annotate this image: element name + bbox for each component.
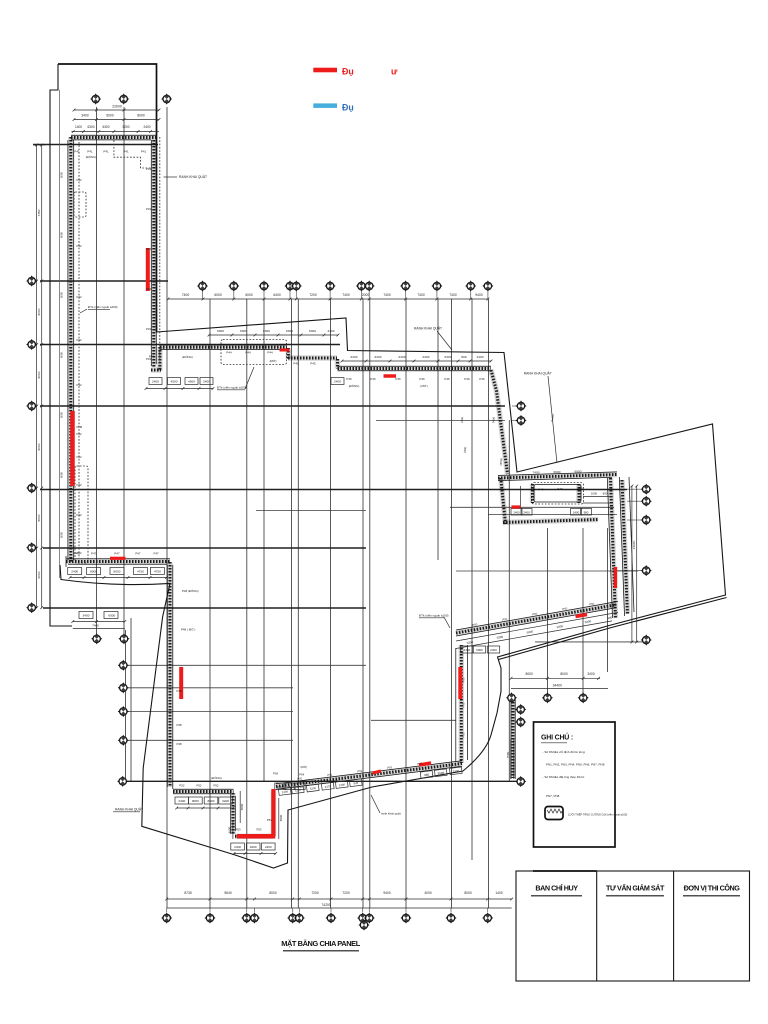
svg-text:P41: P41 [103,150,109,154]
svg-text:6000: 6000 [60,471,64,478]
svg-text:P42: P42 [77,483,83,487]
svg-text:7200: 7200 [309,293,317,297]
svg-text:6000: 6000 [60,171,64,178]
svg-text:6300: 6300 [445,355,452,359]
svg-text:P43: P43 [146,207,152,211]
svg-text:6000: 6000 [575,469,582,473]
svg-text:6000: 6000 [60,231,64,238]
svg-text:8000: 8000 [240,803,244,810]
svg-text:8000: 8000 [37,514,41,521]
svg-text:8000: 8000 [560,672,568,676]
svg-text:3400: 3400 [452,769,459,774]
svg-text:P48: P48 [177,742,183,746]
svg-text:PN1, PN2, PN3, PN4, PN5, PN6,: PN1, PN2, PN3, PN4, PN5, PN6, PN7, PN8 [546,763,605,767]
svg-text:RANH KHAI QUẬT: RANH KHAI QUẬT [414,327,442,331]
svg-text:2400: 2400 [573,511,580,515]
svg-text:ư: ư [391,67,398,77]
svg-text:6300: 6300 [102,125,109,129]
svg-text:9400: 9400 [383,891,391,895]
svg-text:8000: 8000 [114,570,121,574]
svg-text:6300: 6300 [309,329,316,333]
svg-text:8000: 8000 [269,891,277,895]
svg-text:4000: 4000 [424,891,432,895]
svg-text:2400: 2400 [513,511,520,515]
svg-text:8000: 8000 [526,672,534,676]
svg-text:P45: P45 [293,362,299,366]
svg-text:P53: P53 [236,828,241,832]
svg-text:P49: P49 [538,488,544,492]
svg-text:P43: P43 [146,167,152,171]
svg-text:PN8: PN8 [77,425,83,429]
svg-text:6000: 6000 [60,531,64,538]
svg-text:GHI CHÚ :: GHI CHÚ : [541,733,573,742]
svg-text:7400: 7400 [182,293,190,297]
svg-text:6300: 6300 [399,355,406,359]
svg-text:P51: P51 [417,761,423,766]
svg-text:P41: P41 [87,150,93,154]
svg-text:P54: P54 [299,772,304,776]
svg-text:(MỞ): (MỞ) [301,764,308,769]
svg-text:P55: P55 [462,677,466,682]
svg-text:7200: 7200 [311,891,319,895]
svg-text:6300: 6300 [375,355,382,359]
svg-text:P54: P54 [273,771,278,775]
svg-text:P45: P45 [310,362,316,366]
svg-text:2400: 2400 [463,648,470,652]
svg-text:1000: 1000 [591,492,598,496]
svg-text:2400: 2400 [460,416,465,423]
svg-text:P51: P51 [327,772,333,777]
svg-text:6300: 6300 [423,355,430,359]
svg-text:2400: 2400 [234,845,241,849]
svg-text:P48 (ĐÓNG): P48 (ĐÓNG) [182,588,199,593]
svg-text:22600: 22600 [112,105,122,109]
svg-text:P47: P47 [154,552,160,556]
svg-text:P49: P49 [577,487,583,491]
svg-text:BAN CHỈ HUY: BAN CHỈ HUY [535,884,578,893]
svg-text:6300: 6300 [351,355,358,359]
svg-text:PN7, PN8: PN7, PN8 [546,794,560,798]
svg-text:(ĐÓNG): (ĐÓNG) [211,775,222,780]
svg-text:6000: 6000 [37,571,41,578]
svg-text:8000: 8000 [37,371,41,378]
svg-text:2400: 2400 [463,446,468,453]
svg-text:6000: 6000 [106,113,114,117]
svg-text:8000: 8000 [192,799,199,803]
svg-text:8000: 8000 [279,814,283,821]
svg-text:P52: P52 [214,784,219,788]
svg-text:P48 ( MỞ ): P48 ( MỞ ) [181,627,195,632]
svg-text:P44: P44 [267,350,273,354]
svg-text:2400: 2400 [339,782,346,787]
svg-text:3220: 3220 [295,788,302,793]
svg-text:P41: P41 [141,150,147,154]
svg-text:9400: 9400 [475,293,483,297]
svg-text:RANH KHAI QUẬT: RANH KHAI QUẬT [179,175,207,179]
svg-text:3400: 3400 [587,672,595,676]
svg-text:(ĐÓNG): (ĐÓNG) [182,354,193,359]
svg-text:4500: 4500 [171,380,178,384]
svg-text:P46: P46 [395,377,401,381]
svg-text:P48: P48 [177,723,183,727]
svg-text:6000: 6000 [60,411,64,418]
svg-text:RANH KHAI QUẬT: RANH KHAI QUẬT [524,372,552,376]
svg-text:P46: P46 [370,377,376,381]
svg-text:P41: P41 [74,150,80,154]
svg-text:4600: 4600 [250,845,257,849]
svg-text:14500: 14500 [499,457,504,466]
svg-text:P51: P51 [297,776,303,781]
svg-text:2400: 2400 [71,570,78,574]
svg-text:6000: 6000 [60,351,64,358]
svg-text:6000: 6000 [60,291,64,298]
svg-text:5200: 5200 [122,125,129,129]
svg-text:(MỞ): (MỞ) [270,358,277,363]
svg-text:9640: 9640 [224,891,232,895]
svg-text:9598: 9598 [437,771,444,776]
svg-text:ĐTk (viền ngoài a100): ĐTk (viền ngoài a100) [88,305,118,309]
svg-text:2400: 2400 [490,648,497,652]
svg-text:4750: 4750 [137,570,144,574]
svg-text:P43: P43 [146,327,152,331]
svg-text:6000: 6000 [245,293,253,297]
svg-text:8000: 8000 [90,570,97,574]
svg-text:7400: 7400 [417,293,425,297]
svg-text:6000: 6000 [108,614,115,618]
svg-text:Đụ: Đụ [342,67,354,77]
svg-text:P48: P48 [177,689,183,693]
svg-text:1400: 1400 [495,891,503,895]
svg-text:- Số PANEL chỉ định đổ bê tông: - Số PANEL chỉ định đổ bê tông: [543,750,586,754]
svg-text:P51: P51 [357,769,363,774]
svg-text:8000: 8000 [37,308,41,315]
svg-text:2400: 2400 [178,799,185,803]
svg-text:P47: P47 [114,552,120,556]
svg-text:6300: 6300 [263,329,270,333]
svg-text:ĐƠN VỊ THI CÔNG: ĐƠN VỊ THI CÔNG [684,884,741,893]
svg-text:6000: 6000 [214,293,222,297]
svg-text:P46: P46 [479,377,485,381]
svg-text:P42: P42 [77,338,83,342]
svg-text:ĐTk (viền ngoài a100): ĐTk (viền ngoài a100) [217,385,247,389]
svg-text:6300: 6300 [240,329,247,333]
svg-text:P46: P46 [464,377,470,381]
svg-text:980: 980 [584,511,589,515]
svg-text:P42: P42 [77,244,83,248]
svg-text:7450: 7450 [37,209,41,216]
svg-text:2400: 2400 [334,380,341,384]
svg-text:P42: P42 [77,513,83,517]
svg-text:34400: 34400 [553,683,562,687]
svg-text:P51: P51 [387,765,393,770]
svg-text:8000: 8000 [37,443,41,450]
svg-text:P43: P43 [146,247,152,251]
svg-text:24600: 24600 [632,540,636,549]
svg-text:5200: 5200 [310,786,317,791]
svg-text:6300: 6300 [286,329,293,333]
svg-text:P53: P53 [257,828,262,832]
svg-text:(ĐÓNG): (ĐÓNG) [349,383,360,388]
svg-text:3400: 3400 [81,113,89,117]
svg-text:P46: P46 [419,377,425,381]
svg-text:800: 800 [461,355,466,359]
svg-text:( MỞ ): ( MỞ ) [420,383,428,388]
svg-text:P44: P44 [245,350,251,354]
svg-text:P52: P52 [179,784,184,788]
svg-text:ranh khai quật: ranh khai quật [381,812,401,816]
svg-text:7400: 7400 [342,293,350,297]
svg-text:4500: 4500 [188,380,195,384]
svg-text:Đụ: Đụ [342,102,354,112]
svg-text:2400: 2400 [282,789,289,794]
svg-text:8000: 8000 [208,799,215,803]
svg-text:7400: 7400 [449,293,457,297]
svg-text:7580: 7580 [506,751,510,758]
svg-text:P49: P49 [557,487,563,491]
svg-text:P41: P41 [123,150,129,154]
svg-text:P55: P55 [462,702,466,707]
svg-text:7400: 7400 [533,471,540,475]
svg-text:P47: P47 [91,552,97,556]
svg-text:P43: P43 [146,287,152,291]
svg-text:6400: 6400 [273,293,281,297]
svg-text:7200: 7200 [342,891,350,895]
svg-text:P47: P47 [135,552,141,556]
svg-text:6300: 6300 [217,329,224,333]
svg-text:RANH KHAI QUẬT: RANH KHAI QUẬT [115,808,143,812]
svg-text:(ĐÓNG): (ĐÓNG) [86,154,97,159]
svg-text:P55: P55 [462,732,466,737]
svg-text:5400: 5400 [491,416,496,423]
svg-text:P42: P42 [77,295,83,299]
svg-text:74200: 74200 [321,903,330,907]
svg-text:P42: P42 [77,383,83,387]
svg-text:4600: 4600 [227,826,231,833]
svg-text:P42: P42 [77,432,83,436]
svg-text:P52: P52 [197,784,202,788]
svg-text:8735: 8735 [184,891,192,895]
svg-text:TƯ VẤN GIÁM SÁT: TƯ VẤN GIÁM SÁT [606,883,665,893]
svg-text:MẶT BẰNG CHIA PANEL: MẶT BẰNG CHIA PANEL [281,939,361,948]
svg-text:P42: P42 [77,455,83,459]
svg-text:P46: P46 [444,377,450,381]
svg-text:6000: 6000 [476,648,483,652]
svg-text:7400: 7400 [92,624,99,628]
svg-text:2000: 2000 [362,293,370,297]
svg-text:2400: 2400 [328,329,335,333]
svg-text:P47: P47 [74,552,80,556]
svg-text:2400: 2400 [477,355,484,359]
svg-text:2275: 2275 [325,784,332,789]
svg-text:2400: 2400 [143,125,150,129]
svg-text:ĐTk (viền ngoài a100): ĐTk (viền ngoài a100) [419,613,449,617]
svg-text:2400: 2400 [523,511,530,515]
svg-text:2400: 2400 [203,380,210,384]
svg-text:6300: 6300 [87,125,94,129]
svg-text:P46: P46 [346,377,352,381]
svg-text:2400: 2400 [265,845,272,849]
svg-text:3400: 3400 [83,614,90,618]
svg-text:1400: 1400 [75,125,82,129]
svg-text:8000: 8000 [137,113,145,117]
svg-text:4750: 4750 [154,570,161,574]
svg-text:2400: 2400 [152,380,159,384]
svg-text:900: 900 [603,492,608,496]
svg-text:8000: 8000 [464,891,472,895]
svg-text:980: 980 [424,773,430,778]
svg-text:3200: 3200 [222,799,229,803]
svg-text:P43: P43 [149,355,155,359]
svg-text:- Số PANEL đặt ống thép D114:: - Số PANEL đặt ống thép D114: [543,775,585,779]
svg-text:7400: 7400 [383,293,391,297]
svg-text:P44: P44 [226,350,232,354]
svg-text:6000: 6000 [554,470,561,474]
svg-text:P42: P42 [77,178,83,182]
svg-text:P53: P53 [267,818,272,822]
